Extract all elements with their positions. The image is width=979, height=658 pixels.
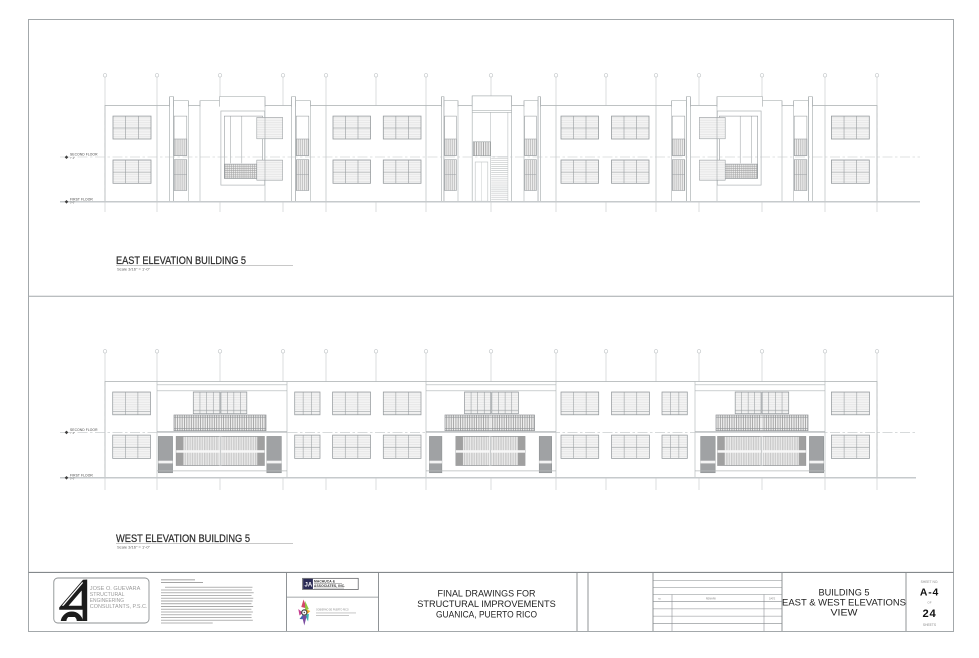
svg-text:GOBIERNO DE PUERTO RICO: GOBIERNO DE PUERTO RICO (316, 610, 349, 612)
svg-text:7'-2": 7'-2" (70, 432, 75, 435)
svg-text:7'-2": 7'-2" (70, 157, 75, 160)
svg-text:SHEETS: SHEETS (923, 623, 937, 627)
svg-text:A-4: A-4 (920, 587, 939, 598)
svg-text:STRUCTURAL IMPROVEMENTS: STRUCTURAL IMPROVEMENTS (417, 599, 556, 609)
svg-text:24: 24 (922, 608, 936, 620)
svg-text:REMARK: REMARK (706, 597, 717, 600)
svg-text:GUANICA, PUERTO RICO: GUANICA, PUERTO RICO (436, 610, 537, 620)
svg-text:WEST ELEVATION BUILDING 5: WEST ELEVATION BUILDING 5 (116, 533, 250, 545)
svg-text:ASSOCIATES, INC.: ASSOCIATES, INC. (314, 584, 345, 588)
svg-text:JOSE O. GUEVARA: JOSE O. GUEVARA (90, 586, 141, 592)
svg-text:0'-0": 0'-0" (70, 478, 75, 481)
svg-text:DATE: DATE (769, 597, 776, 600)
svg-text:no.: no. (658, 597, 662, 600)
svg-text:ENGINEERING: ENGINEERING (90, 598, 124, 604)
svg-text:Scale 3/16" = 1'-0": Scale 3/16" = 1'-0" (117, 267, 151, 271)
svg-text:FINAL DRAWINGS FOR: FINAL DRAWINGS FOR (438, 588, 536, 598)
svg-text:MACHUCA &: MACHUCA & (314, 580, 336, 584)
svg-text:SHEET NO.: SHEET NO. (921, 580, 939, 584)
svg-text:JA: JA (305, 582, 313, 588)
svg-text:OF: OF (927, 601, 931, 605)
svg-text:CONSULTANTS, P.S.C.: CONSULTANTS, P.S.C. (90, 604, 148, 610)
svg-text:EAST ELEVATION BUILDING 5: EAST ELEVATION BUILDING 5 (116, 255, 246, 267)
svg-text:VIEW: VIEW (831, 606, 858, 617)
svg-text:Scale 3/16" = 1'-0": Scale 3/16" = 1'-0" (117, 545, 151, 549)
svg-text:STRUCTURAL: STRUCTURAL (90, 592, 125, 598)
svg-text:0'-0": 0'-0" (70, 202, 75, 205)
